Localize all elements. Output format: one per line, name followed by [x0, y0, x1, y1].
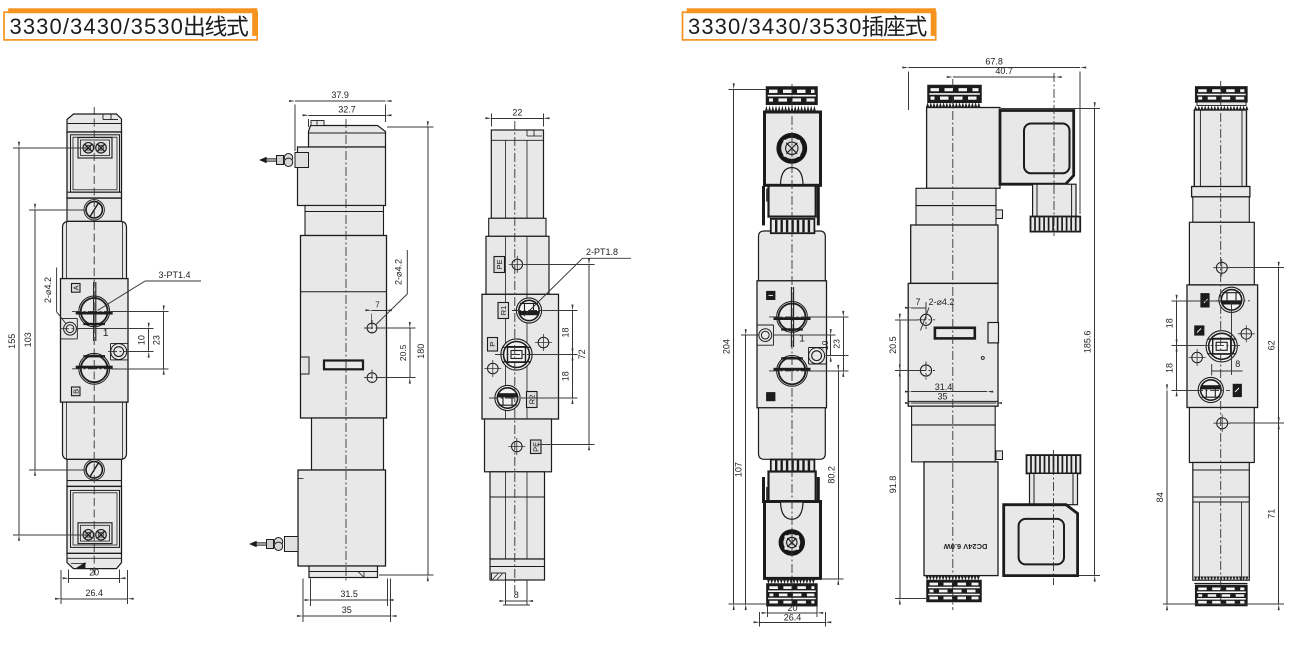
svg-text:71: 71	[1267, 509, 1277, 519]
svg-text:7: 7	[915, 297, 920, 307]
svg-text:R1: R1	[499, 306, 508, 316]
svg-text:2-⌀4.2: 2-⌀4.2	[394, 259, 404, 285]
svg-text:2-⌀4.2: 2-⌀4.2	[43, 277, 53, 303]
svg-text:R2: R2	[527, 395, 536, 405]
svg-text:2-⌀4.2: 2-⌀4.2	[929, 297, 955, 307]
svg-text:7: 7	[375, 300, 380, 309]
svg-text:26.4: 26.4	[86, 588, 104, 598]
svg-text:B: B	[71, 389, 80, 394]
svg-text:107: 107	[734, 462, 744, 477]
svg-text:22: 22	[512, 107, 522, 117]
svg-text:31.4: 31.4	[935, 382, 953, 392]
svg-text:PE: PE	[531, 442, 540, 452]
svg-text:67.8: 67.8	[985, 57, 1003, 67]
svg-text:PE: PE	[495, 259, 504, 269]
svg-text:26.4: 26.4	[784, 613, 802, 623]
svg-text:23: 23	[152, 335, 162, 345]
svg-text:91.8: 91.8	[888, 476, 898, 494]
svg-text:35: 35	[342, 605, 352, 615]
svg-text:20: 20	[89, 567, 99, 577]
svg-text:180: 180	[416, 344, 426, 359]
svg-text:185.6: 185.6	[1083, 331, 1093, 354]
svg-text:32.7: 32.7	[338, 104, 356, 114]
svg-text:204: 204	[722, 339, 732, 354]
svg-text:18: 18	[1165, 318, 1175, 328]
svg-text:18: 18	[1165, 363, 1175, 373]
svg-text:10: 10	[137, 335, 147, 345]
svg-text:3330/3430/3530: 3330/3430/3530	[688, 14, 862, 39]
svg-text:72: 72	[577, 349, 587, 359]
svg-text:A: A	[71, 285, 80, 290]
svg-text:DC24V 6.0W: DC24V 6.0W	[943, 542, 988, 551]
svg-text:18: 18	[561, 371, 571, 381]
svg-text:80.2: 80.2	[826, 466, 836, 484]
svg-text:20.5: 20.5	[398, 344, 408, 361]
svg-text:23: 23	[831, 339, 841, 349]
svg-text:31.5: 31.5	[340, 589, 358, 599]
svg-text:62: 62	[1267, 340, 1277, 350]
svg-text:18: 18	[561, 327, 571, 337]
svg-text:40.7: 40.7	[995, 66, 1013, 76]
svg-text:20: 20	[787, 603, 797, 613]
svg-text:84: 84	[1155, 492, 1165, 502]
svg-text:2-PT1.8: 2-PT1.8	[586, 247, 618, 257]
svg-text:8: 8	[1235, 359, 1240, 369]
svg-text:3-PT1.4: 3-PT1.4	[159, 270, 191, 280]
svg-text:155: 155	[7, 334, 17, 349]
svg-text:1: 1	[799, 332, 805, 344]
svg-text:P: P	[488, 342, 497, 347]
svg-text:8: 8	[514, 590, 519, 600]
svg-text:3330/3430/3530: 3330/3430/3530	[10, 14, 184, 39]
svg-text:10: 10	[820, 340, 830, 350]
svg-text:37.9: 37.9	[331, 90, 349, 100]
svg-text:103: 103	[23, 332, 33, 347]
svg-text:20.5: 20.5	[888, 336, 898, 354]
svg-text:35: 35	[937, 392, 947, 402]
